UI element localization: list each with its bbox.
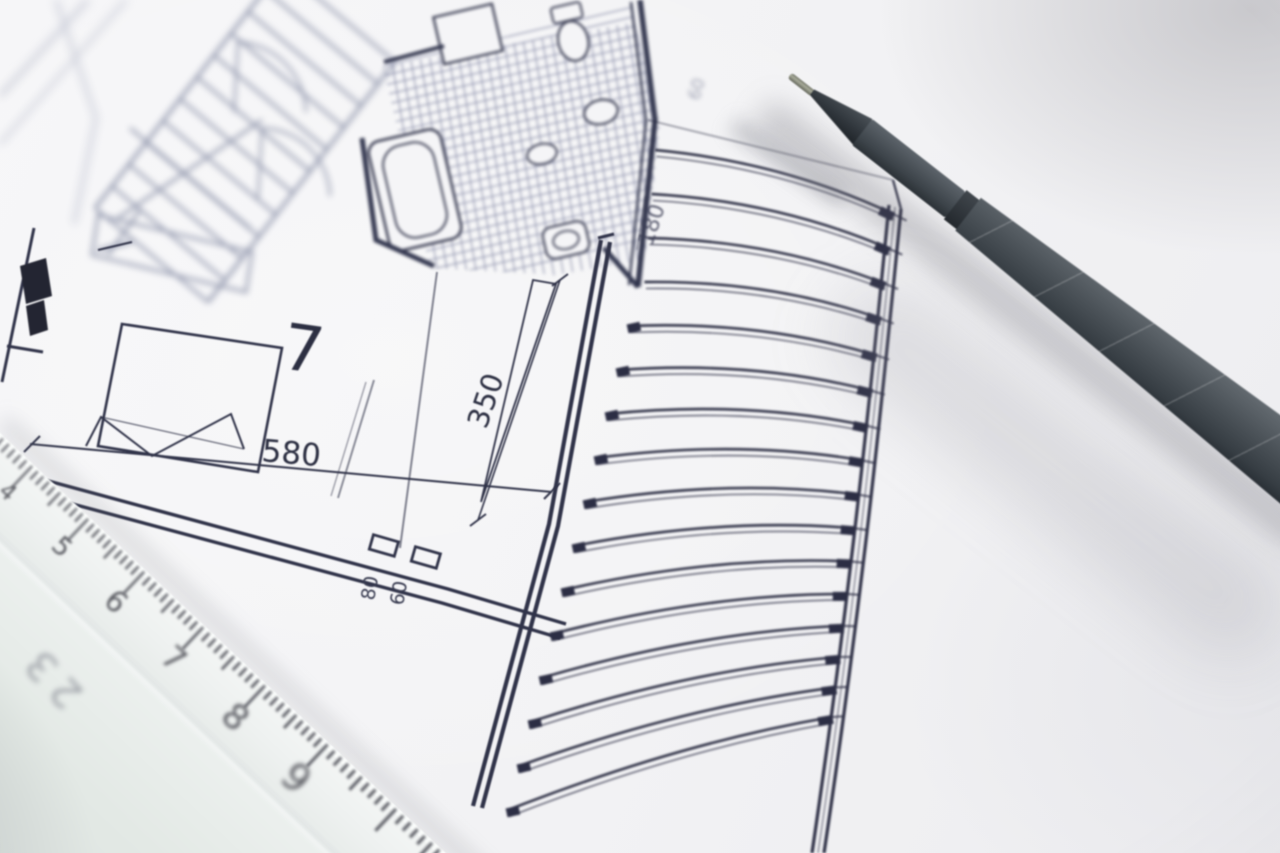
dim-180-label: 180 <box>634 201 671 249</box>
deck-board-line <box>521 694 836 773</box>
ruler-tick <box>308 733 316 741</box>
bed <box>98 324 282 472</box>
deck-board <box>508 717 831 810</box>
ruler-tick <box>284 715 296 728</box>
ruler-tick <box>264 691 272 699</box>
ruler-tick <box>220 650 228 658</box>
ruler-tick <box>125 561 133 569</box>
deck-board <box>563 561 850 590</box>
door-jamb <box>369 535 398 557</box>
ruler-tick <box>375 809 396 831</box>
ruler-tick <box>120 556 128 564</box>
ruler-tick <box>172 605 180 613</box>
stair-tread <box>180 99 293 193</box>
ruler-tick <box>104 545 116 558</box>
ruler-tick <box>7 450 15 458</box>
ruler-tick <box>233 662 241 670</box>
ruler-tick <box>403 822 411 830</box>
wall-poche <box>20 258 52 304</box>
bathtub <box>366 127 463 253</box>
ruler-tick <box>36 477 44 485</box>
ruler-tick <box>375 796 383 804</box>
ruler-tick <box>347 770 355 778</box>
ruler-tick <box>410 829 418 837</box>
ruler-tick <box>361 783 369 791</box>
deck-board-line <box>532 663 840 728</box>
deck-board-line <box>510 723 832 816</box>
ruler-tick <box>69 508 77 516</box>
ruler-tick <box>239 668 247 676</box>
ruler-tick <box>202 633 210 641</box>
tile-line <box>373 4 648 69</box>
tile-line <box>384 50 659 115</box>
ruler-tick <box>1 444 9 452</box>
board-start-cap <box>517 762 532 774</box>
ruler-tick <box>251 680 259 688</box>
shower-fixture <box>433 4 502 64</box>
stair-tread <box>248 12 361 106</box>
ruler-tick <box>143 577 151 585</box>
ruler-tick <box>432 850 440 853</box>
ruler-tick <box>314 739 322 747</box>
tile-line <box>375 13 650 78</box>
ruler-tick <box>270 697 278 705</box>
tile-line <box>389 68 664 133</box>
ruler-tick <box>282 709 290 717</box>
stair-tread <box>231 33 344 127</box>
ruler-tick <box>114 550 122 558</box>
ruler-tick <box>396 816 404 824</box>
ruler-tick <box>382 802 390 810</box>
deck-board-line <box>620 374 872 396</box>
deck-board <box>541 626 842 678</box>
dim-60-label: 60 <box>386 579 412 607</box>
ruler-tick <box>368 790 376 798</box>
deck-board-line <box>543 632 843 685</box>
ruler-tick <box>154 588 162 596</box>
ruler-tick <box>75 514 83 522</box>
tile-line <box>458 53 498 285</box>
ruler-tick <box>161 599 173 612</box>
ruler-tick <box>245 674 253 682</box>
ruler-tick <box>349 777 361 790</box>
board-start-cap <box>528 718 543 730</box>
tile-line <box>598 29 638 261</box>
ruler-tick <box>131 566 139 574</box>
ruler-tick <box>86 524 94 532</box>
ruler-tick <box>64 503 72 511</box>
dim-580-label: 580 <box>260 433 322 474</box>
ruler-tick <box>47 487 55 495</box>
stair-tread <box>214 55 327 149</box>
ruler-tick <box>295 721 303 729</box>
faint-top-dimension: 60 <box>685 76 710 102</box>
ruler-tick <box>184 616 192 624</box>
stair-tread <box>197 77 310 171</box>
room-number: 7 <box>278 311 329 390</box>
tile-line <box>495 47 535 279</box>
wall-poche <box>26 300 48 336</box>
tile-line <box>449 55 489 287</box>
tile-line <box>467 51 507 283</box>
ruler-tick <box>30 471 38 479</box>
bidet <box>541 219 591 260</box>
ruler-tick <box>208 639 216 647</box>
staircase <box>92 0 395 302</box>
bathroom <box>362 0 702 298</box>
ruler-tick <box>97 535 105 543</box>
board-start-cap <box>550 630 565 642</box>
ruler-tick <box>160 594 168 602</box>
ruler-tick <box>58 498 66 506</box>
ruler-tick <box>190 622 198 630</box>
deck-board <box>574 525 854 546</box>
board-start-cap <box>539 674 554 686</box>
ruler-tick <box>178 611 186 619</box>
svg-text:60: 60 <box>685 76 710 102</box>
deck-board-line <box>598 456 864 467</box>
door-jamb <box>411 547 440 569</box>
ruler-tick <box>341 764 349 772</box>
ruler-tick <box>301 727 309 735</box>
photo-architectural-floor-plan: 7 580 80 60 350 <box>0 0 1280 853</box>
board-start-cap <box>506 806 521 818</box>
ruler-tick <box>276 703 284 711</box>
ruler-tick <box>222 656 234 669</box>
tile-line <box>387 59 662 124</box>
ruler-tick <box>19 461 27 469</box>
ruler-tick <box>48 492 60 505</box>
ruler-tick <box>148 583 156 591</box>
stair-tread <box>95 208 208 302</box>
dim-80-label: 80 <box>357 574 383 602</box>
ruler-tick <box>420 843 432 853</box>
ruler-tick <box>417 836 425 844</box>
ruler-tick <box>41 482 49 490</box>
deck-board-line <box>576 531 855 552</box>
ruler-tick <box>214 645 222 653</box>
ruler-tick <box>13 455 21 463</box>
deck-board <box>530 657 838 722</box>
ruler-tick <box>327 751 335 759</box>
ruler-tick <box>103 540 111 548</box>
dim-350-label: 350 <box>460 369 510 432</box>
board-start-cap <box>561 586 576 598</box>
ruler-tick <box>92 529 100 537</box>
bed-blanket-fold <box>86 414 244 456</box>
ruler-tick <box>334 757 342 765</box>
